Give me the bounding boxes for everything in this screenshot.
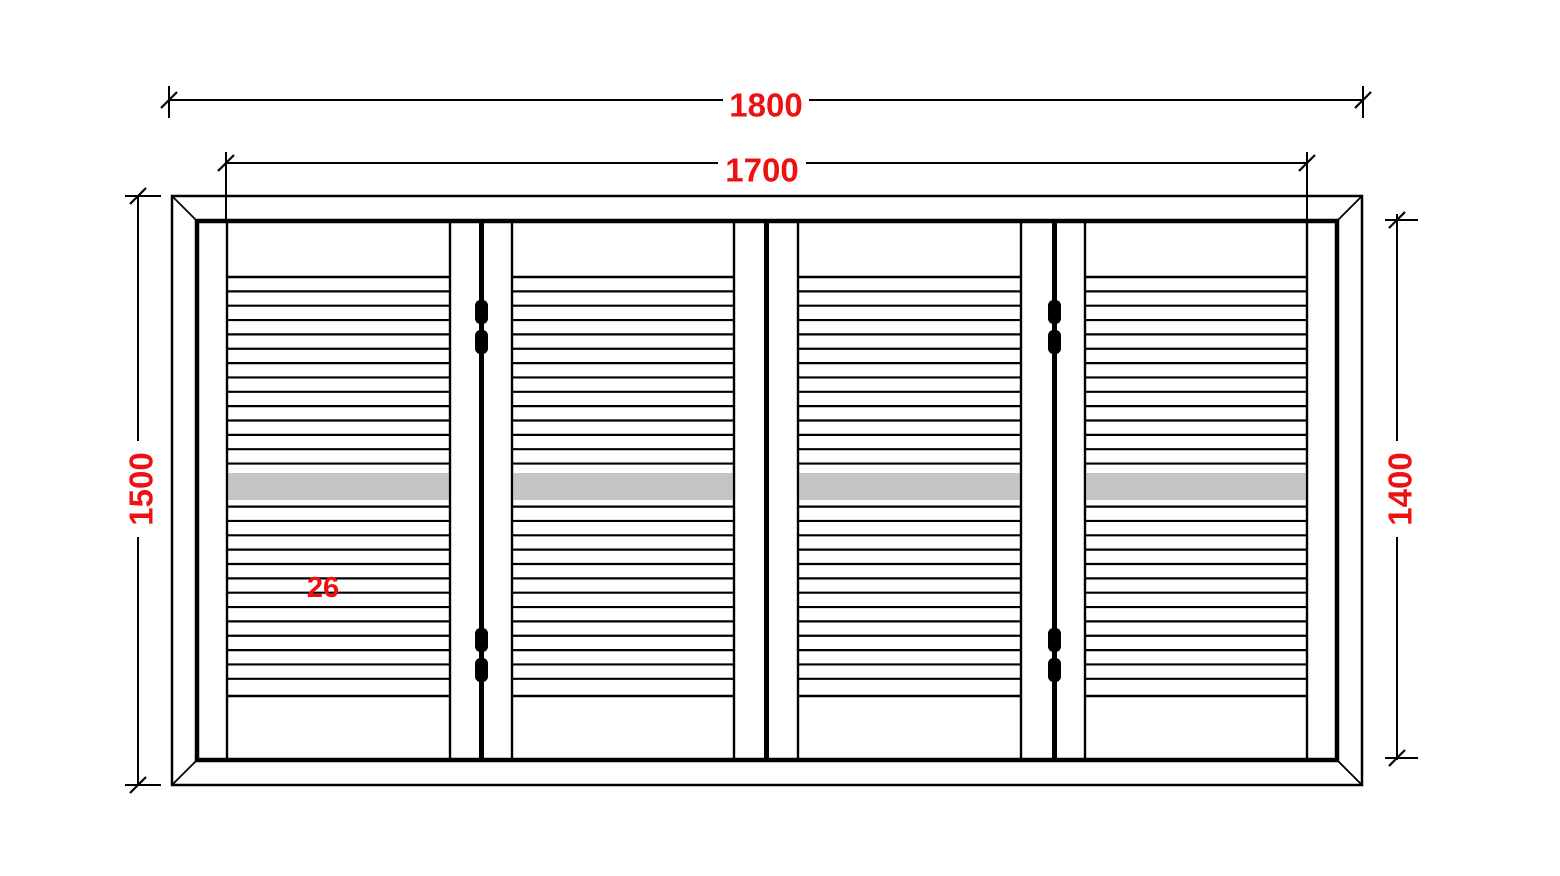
mid-rail-band — [229, 473, 449, 500]
miter-line — [1337, 760, 1362, 785]
dimension-inner-height-label: 1400 — [1382, 452, 1419, 525]
dimension-outer-height: 1500 — [123, 188, 162, 793]
hinge-knuckle — [475, 300, 488, 324]
hinge-knuckle — [1048, 300, 1061, 324]
hinge-knuckle — [475, 658, 488, 682]
mid-rail-band — [514, 473, 733, 500]
hinge-knuckle — [475, 330, 488, 354]
hinge-knuckle — [1048, 330, 1061, 354]
mid-rail-band — [1087, 473, 1306, 500]
drawing-svg: 1800 1700 1500 1400 26 — [0, 0, 1560, 876]
mid-rail-band — [800, 473, 1020, 500]
hinge-knuckle — [475, 628, 488, 652]
dimension-inner-width-label: 1700 — [725, 152, 798, 189]
dimension-outer-width-label: 1800 — [729, 87, 802, 124]
dimension-outer-width: 1800 — [161, 86, 1371, 124]
hinge-knuckle — [1048, 628, 1061, 652]
elevation-drawing: 1800 1700 1500 1400 26 — [0, 0, 1560, 876]
miter-line — [172, 760, 197, 785]
shutter-panels — [227, 222, 1307, 758]
dimension-outer-height-label: 1500 — [123, 452, 160, 525]
dimension-inner-height: 1400 — [1382, 212, 1419, 766]
hinge-knuckle — [1048, 658, 1061, 682]
louver-size-label: 26 — [307, 572, 339, 604]
miter-line — [172, 196, 197, 221]
dimension-inner-width: 1700 — [218, 152, 1315, 223]
miter-line — [1337, 196, 1362, 221]
